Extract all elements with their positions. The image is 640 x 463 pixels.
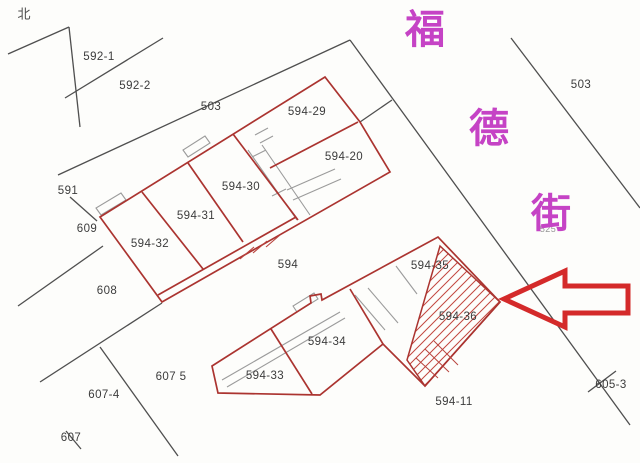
street-name-char-街: 街 bbox=[531, 181, 571, 239]
parcel-label-592-2: 592-2 bbox=[119, 80, 150, 92]
parcel-label-594-33: 594-33 bbox=[246, 370, 284, 382]
parcel-label-594-29: 594-29 bbox=[288, 106, 326, 118]
compass-north-label: 北 bbox=[17, 4, 30, 23]
parcel-label-594-34: 594-34 bbox=[308, 336, 346, 348]
parcel-label-607 5: 607 5 bbox=[156, 371, 187, 383]
parcel-label-594-35: 594-35 bbox=[411, 260, 449, 272]
parcel-label-592-1: 592-1 bbox=[83, 51, 114, 63]
parcel-label-503: 503 bbox=[201, 101, 221, 113]
parcel-label-594-36: 594-36 bbox=[439, 311, 477, 323]
parcel-label-591: 591 bbox=[58, 185, 78, 197]
street-name-char-福: 福 bbox=[405, 0, 445, 55]
parcel-label-607: 607 bbox=[61, 432, 81, 444]
parcel-label-503: 503 bbox=[571, 79, 591, 91]
parcel-label-594: 594 bbox=[278, 259, 298, 271]
parcel-label-608: 608 bbox=[97, 285, 117, 297]
cadastral-map: 北 592-1592-2503503594-29594-20594-30594-… bbox=[0, 0, 640, 463]
parcel-label-594-30: 594-30 bbox=[222, 181, 260, 193]
parcel-label-594-11: 594-11 bbox=[435, 396, 472, 408]
parcel-label-594-31: 594-31 bbox=[177, 210, 215, 222]
parcel-label-594-32: 594-32 bbox=[131, 238, 169, 250]
parcel-label-609: 609 bbox=[77, 223, 97, 235]
parcel-label-607-4: 607-4 bbox=[88, 389, 119, 401]
label-layer: 北 592-1592-2503503594-29594-20594-30594-… bbox=[0, 0, 640, 463]
parcel-label-594-20: 594-20 bbox=[325, 151, 363, 163]
street-name-char-德: 德 bbox=[469, 96, 509, 154]
parcel-label-605-3: 605-3 bbox=[595, 379, 626, 391]
